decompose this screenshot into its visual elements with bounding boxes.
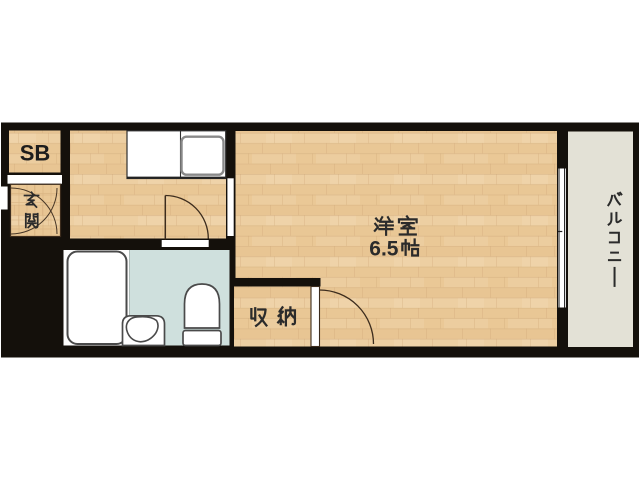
svg-text:6.5: 6.5 bbox=[369, 238, 399, 261]
svg-text:SB: SB bbox=[20, 141, 51, 166]
